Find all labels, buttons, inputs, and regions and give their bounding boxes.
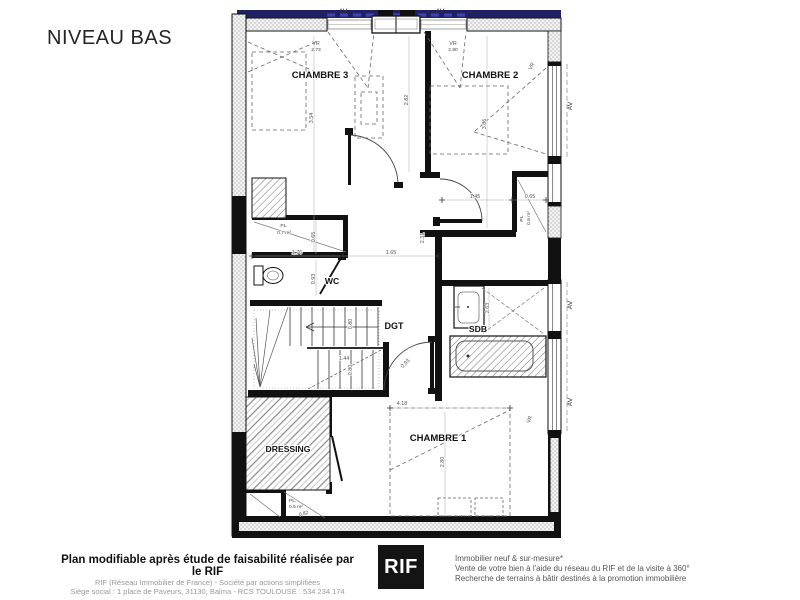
footer-company-line2: Siège social : 1 place de Paveurs, 31130… bbox=[55, 587, 360, 596]
sdb-dashed-marks bbox=[482, 288, 544, 334]
room-label-dressing: DRESSING bbox=[266, 444, 311, 454]
footer-company-line1: RIF (Réseau Immobilier de France) - Soci… bbox=[55, 578, 360, 587]
room-label-sdb: SDB bbox=[469, 324, 487, 334]
bathtub-icon bbox=[450, 336, 546, 377]
closet-dressing-area: 0.5 m² bbox=[289, 504, 303, 510]
dim-closet-ch2-width: 0.65 bbox=[525, 194, 536, 200]
vr-value-top-right: 2.80 bbox=[448, 47, 458, 53]
bed-chambre3 bbox=[252, 52, 306, 130]
door-arc-chambre3 bbox=[351, 135, 398, 185]
right-window-chambre2 bbox=[548, 62, 561, 160]
closet-chambre2: PL. 0.8 m² bbox=[518, 180, 546, 232]
duct-shaft bbox=[252, 178, 286, 218]
dim-hall-depth: 2.31 bbox=[420, 233, 426, 244]
dim-chambre2-depth: 3.86 bbox=[482, 119, 488, 130]
door-leaf-dressing bbox=[332, 436, 342, 481]
dim-hall-top: 2.82 bbox=[404, 95, 410, 106]
floor-plan-svg: AV AV AV AV AV VR 2.73 VR 2.80 VR VR bbox=[228, 4, 578, 538]
av-label-right-bottom: AV bbox=[567, 397, 574, 406]
closet-wc-label: PL. bbox=[280, 223, 287, 229]
bed-chambre2 bbox=[430, 86, 508, 154]
closet-dressing: PL. 0.5 m² 0.82 bbox=[250, 492, 325, 518]
footer-disclaimer: Plan modifiable après étude de faisabili… bbox=[55, 554, 360, 578]
right-window-chambre1 bbox=[548, 335, 561, 434]
door-arc-chambre1 bbox=[384, 342, 432, 390]
closet-wc-area: 0.7 m² bbox=[277, 230, 291, 236]
bed-zone-chambre1 bbox=[390, 408, 510, 516]
staircase: 0.80 1.44 0.80 bbox=[252, 307, 383, 389]
dim-sdb-depth: 2.63 bbox=[485, 303, 491, 314]
footer-services-block: Immobilier neuf & sur-mesure* Vente de v… bbox=[455, 554, 765, 584]
stair-run-top-dim: 0.80 bbox=[348, 319, 354, 330]
floor-plan: AV AV AV AV AV VR 2.73 VR 2.80 VR VR bbox=[228, 4, 578, 538]
closet-wc: PL. 0.7 m² 0.65 bbox=[254, 220, 346, 254]
vr-label-top-right: VR bbox=[449, 41, 457, 47]
dim-hall-width: 1.65 bbox=[386, 250, 397, 256]
dim-wc-depth: 0.93 bbox=[311, 274, 317, 285]
sink-icon bbox=[454, 286, 484, 328]
closet-ch2-label: PL. bbox=[519, 214, 525, 221]
closet-ch2-area: 0.8 m² bbox=[526, 211, 532, 225]
toilet-icon bbox=[254, 266, 283, 285]
vr-value-top-left: 2.73 bbox=[311, 47, 321, 53]
room-label-chambre3: CHAMBRE 3 bbox=[292, 70, 348, 81]
av-label-right-top: AV bbox=[567, 101, 574, 110]
dim-wc-width: 1.76 bbox=[292, 250, 303, 256]
dim-chambre1-depth: 2.80 bbox=[440, 457, 446, 468]
dim-chambre1-door: 0.93 bbox=[400, 358, 412, 370]
desk-chambre3 bbox=[355, 76, 383, 138]
footer-services-line3: Recherche de terrains à bâtir destinés à… bbox=[455, 574, 765, 584]
footer-services-line1: Immobilier neuf & sur-mesure* bbox=[455, 554, 765, 564]
closet-dressing-label: PL. bbox=[289, 498, 296, 504]
room-label-chambre1: CHAMBRE 1 bbox=[410, 433, 467, 444]
av-label-top-left: AV bbox=[339, 8, 348, 15]
stair-width-dim: 1.44 bbox=[339, 356, 350, 362]
av-label-top-right: AV bbox=[436, 8, 445, 15]
vr-label-chambre1: VR bbox=[526, 415, 534, 424]
footer-services-line2: Vente de votre bien à l'aide du réseau d… bbox=[455, 564, 765, 574]
dim-chambre1-width: 4.18 bbox=[397, 401, 408, 407]
page-title: NIVEAU BAS bbox=[47, 27, 172, 50]
rif-logo: RIF bbox=[378, 545, 424, 589]
room-label-dgt: DGT bbox=[385, 321, 405, 331]
stair-run-bottom-dim: 0.80 bbox=[348, 365, 354, 376]
footer-company-block: Plan modifiable après étude de faisabili… bbox=[55, 554, 360, 596]
av-label-right-mid: AV bbox=[567, 300, 574, 309]
vr-label-top-left: VR bbox=[312, 41, 320, 47]
dim-chambre3-depth: 3.54 bbox=[309, 113, 315, 124]
dim-vestibule-width: 1.45 bbox=[470, 194, 481, 200]
vr-label-chambre2: VR bbox=[528, 62, 537, 72]
right-window-sdb bbox=[548, 280, 561, 335]
room-label-chambre2: CHAMBRE 2 bbox=[462, 70, 518, 81]
room-label-wc: WC bbox=[325, 276, 339, 286]
dressing-area: DRESSING bbox=[246, 397, 330, 490]
